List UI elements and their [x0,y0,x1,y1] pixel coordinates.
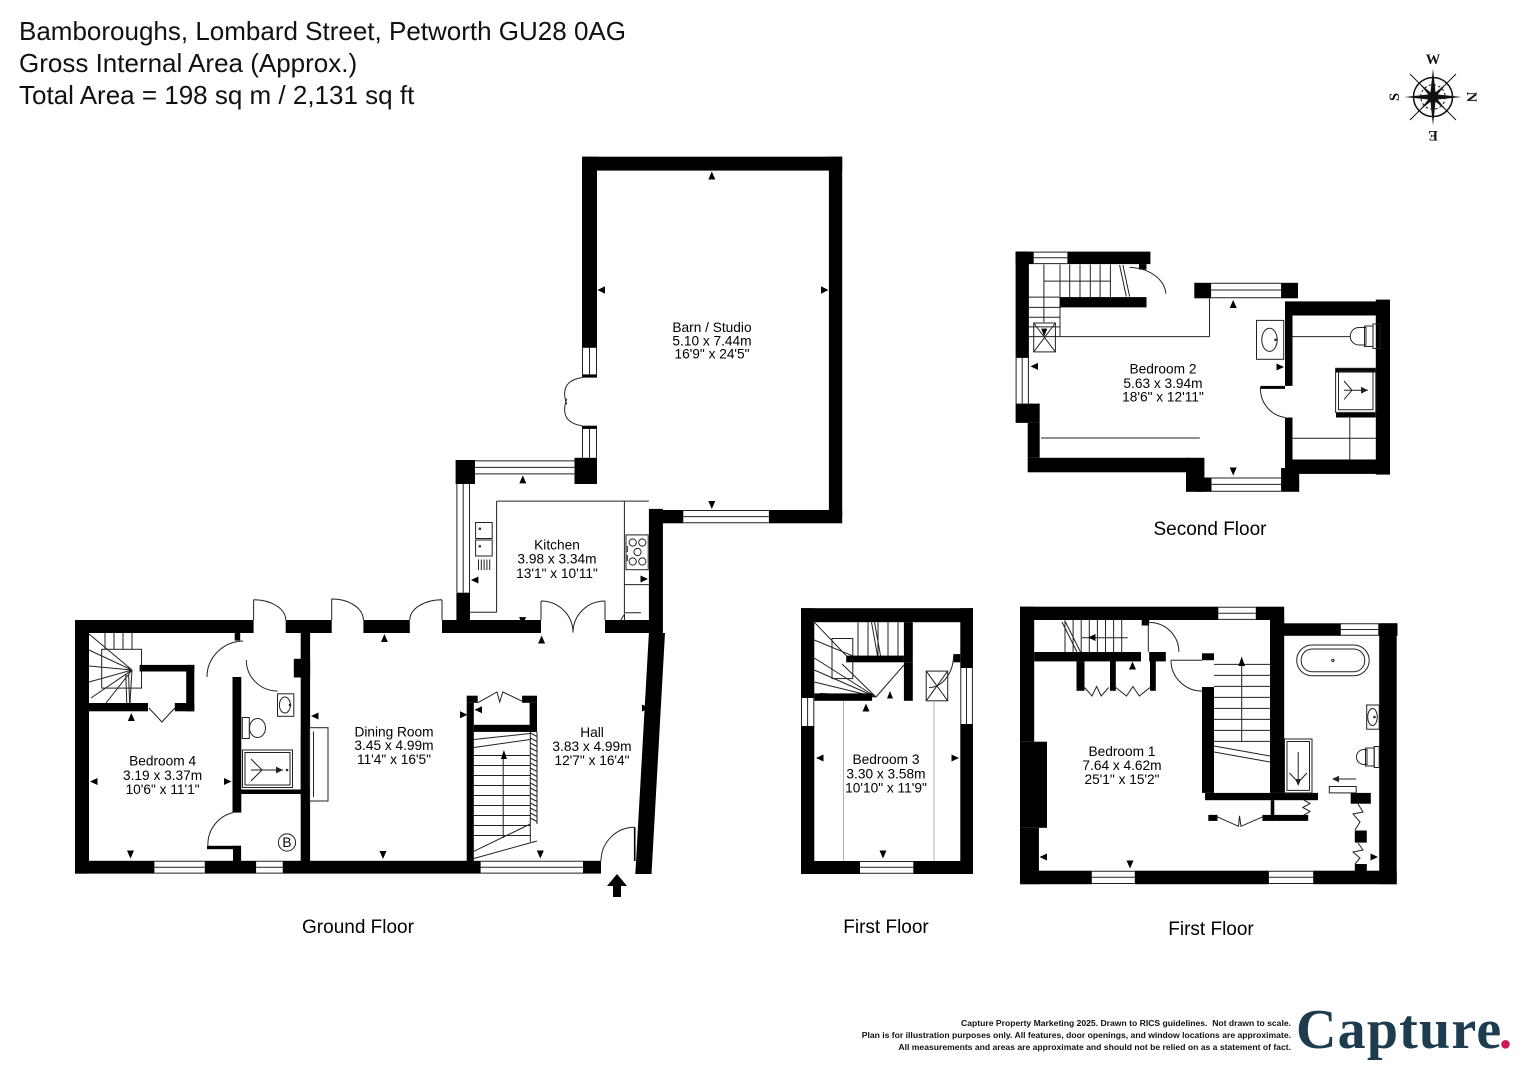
svg-text:Capture Property Marketing 202: Capture Property Marketing 2025. Drawn t… [961,1018,1291,1028]
svg-text:W: W [1426,52,1441,68]
svg-text:Dining Room: Dining Room [354,724,433,739]
svg-text:Bedroom 2: Bedroom 2 [1130,362,1197,377]
svg-text:Bedroom 1: Bedroom 1 [1089,744,1156,759]
svg-text:7.64 x 4.62m: 7.64 x 4.62m [1082,758,1161,773]
svg-text:25'1" x 15'2": 25'1" x 15'2" [1084,772,1159,787]
svg-text:16'9" x 24'5": 16'9" x 24'5" [674,347,749,362]
svg-text:First Floor: First Floor [1168,919,1254,940]
svg-text:Kitchen: Kitchen [534,538,580,553]
svg-text:3.98 x 3.34m: 3.98 x 3.34m [517,552,596,567]
svg-text:E: E [1428,127,1438,143]
svg-text:Bedroom 4: Bedroom 4 [129,754,196,769]
svg-text:3.19 x 3.37m: 3.19 x 3.37m [123,768,202,783]
svg-text:B: B [282,835,291,850]
svg-text:First Floor: First Floor [843,917,929,938]
svg-text:13'1" x 10'11": 13'1" x 10'11" [516,566,598,581]
svg-text:3.30 x 3.58m: 3.30 x 3.58m [846,766,925,781]
svg-text:3.45 x 4.99m: 3.45 x 4.99m [354,738,433,753]
svg-text:Plan is for illustration purpo: Plan is for illustration purposes only. … [862,1030,1291,1040]
svg-text:Gross Internal Area (Approx.): Gross Internal Area (Approx.) [19,48,357,78]
svg-text:S: S [1387,93,1403,101]
svg-text:Bedroom 3: Bedroom 3 [853,752,920,767]
svg-text:3.83 x 4.99m: 3.83 x 4.99m [552,739,631,754]
svg-text:Second Floor: Second Floor [1153,519,1267,540]
svg-text:12'7" x 16'4": 12'7" x 16'4" [554,753,629,768]
svg-text:18'6" x 12'11": 18'6" x 12'11" [1122,390,1204,405]
svg-text:10'6" x 11'1": 10'6" x 11'1" [126,782,200,797]
svg-text:Ground Floor: Ground Floor [302,917,415,938]
svg-text:N: N [1463,92,1479,103]
svg-text:Capture: Capture [1296,999,1502,1061]
svg-text:Bamboroughs, Lombard Street, P: Bamboroughs, Lombard Street, Petworth GU… [19,16,626,46]
svg-text:10'10" x 11'9": 10'10" x 11'9" [845,780,927,795]
svg-text:All measurements and areas are: All measurements and areas are approxima… [898,1042,1291,1052]
svg-text:Hall: Hall [580,725,604,740]
svg-text:11'4" x 16'5": 11'4" x 16'5" [357,752,431,767]
svg-text:Total Area = 198 sq m / 2,131: Total Area = 198 sq m / 2,131 sq ft [19,80,415,110]
